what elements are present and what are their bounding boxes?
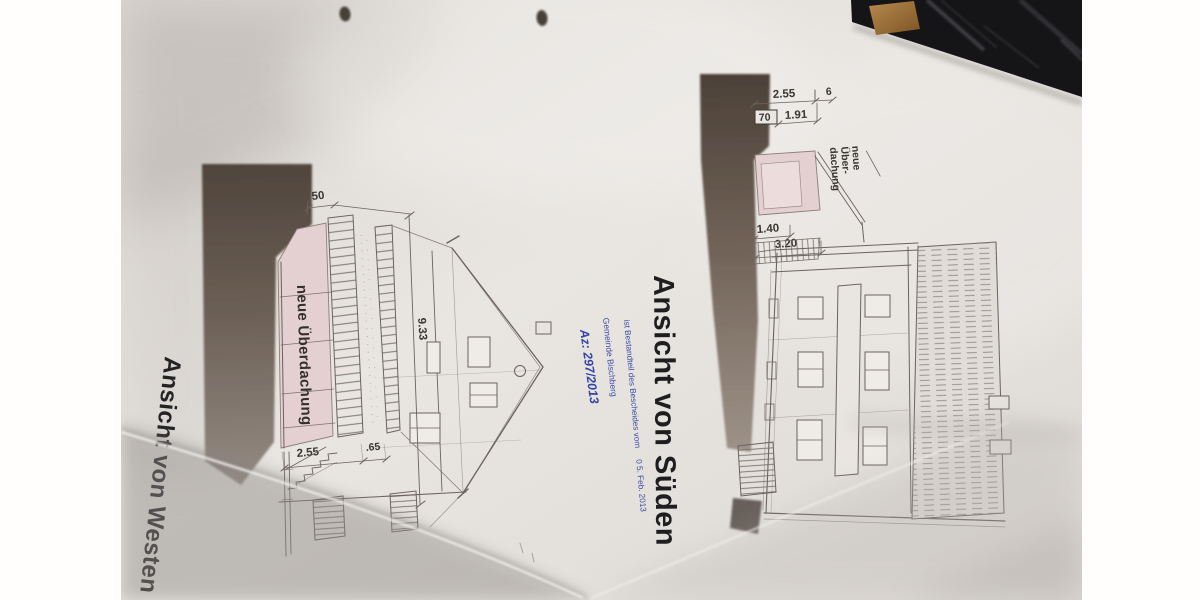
letterbox-left: [0, 0, 121, 600]
dim-6: 6: [826, 86, 833, 98]
wood-trim: [869, 1, 920, 35]
dim-70: 70: [755, 110, 777, 124]
svg-text:9.33: 9.33: [415, 317, 429, 340]
svg-text:70: 70: [759, 111, 771, 124]
south-title: Ansicht von Süden: [647, 275, 681, 546]
svg-text:2.55: 2.55: [296, 446, 320, 460]
south-basement-window: [738, 442, 776, 496]
screenshot: 50 9.33 2.55 .65: [0, 0, 1200, 600]
svg-text:.65: .65: [365, 441, 381, 454]
svg-text:50: 50: [311, 190, 325, 203]
svg-text:2.55: 2.55: [773, 88, 797, 101]
photo-of-architectural-plan: 50 9.33 2.55 .65: [121, 0, 1082, 600]
svg-text:1.40: 1.40: [756, 222, 779, 236]
letterbox-right: [1082, 0, 1200, 600]
svg-text:1.91: 1.91: [785, 109, 809, 122]
